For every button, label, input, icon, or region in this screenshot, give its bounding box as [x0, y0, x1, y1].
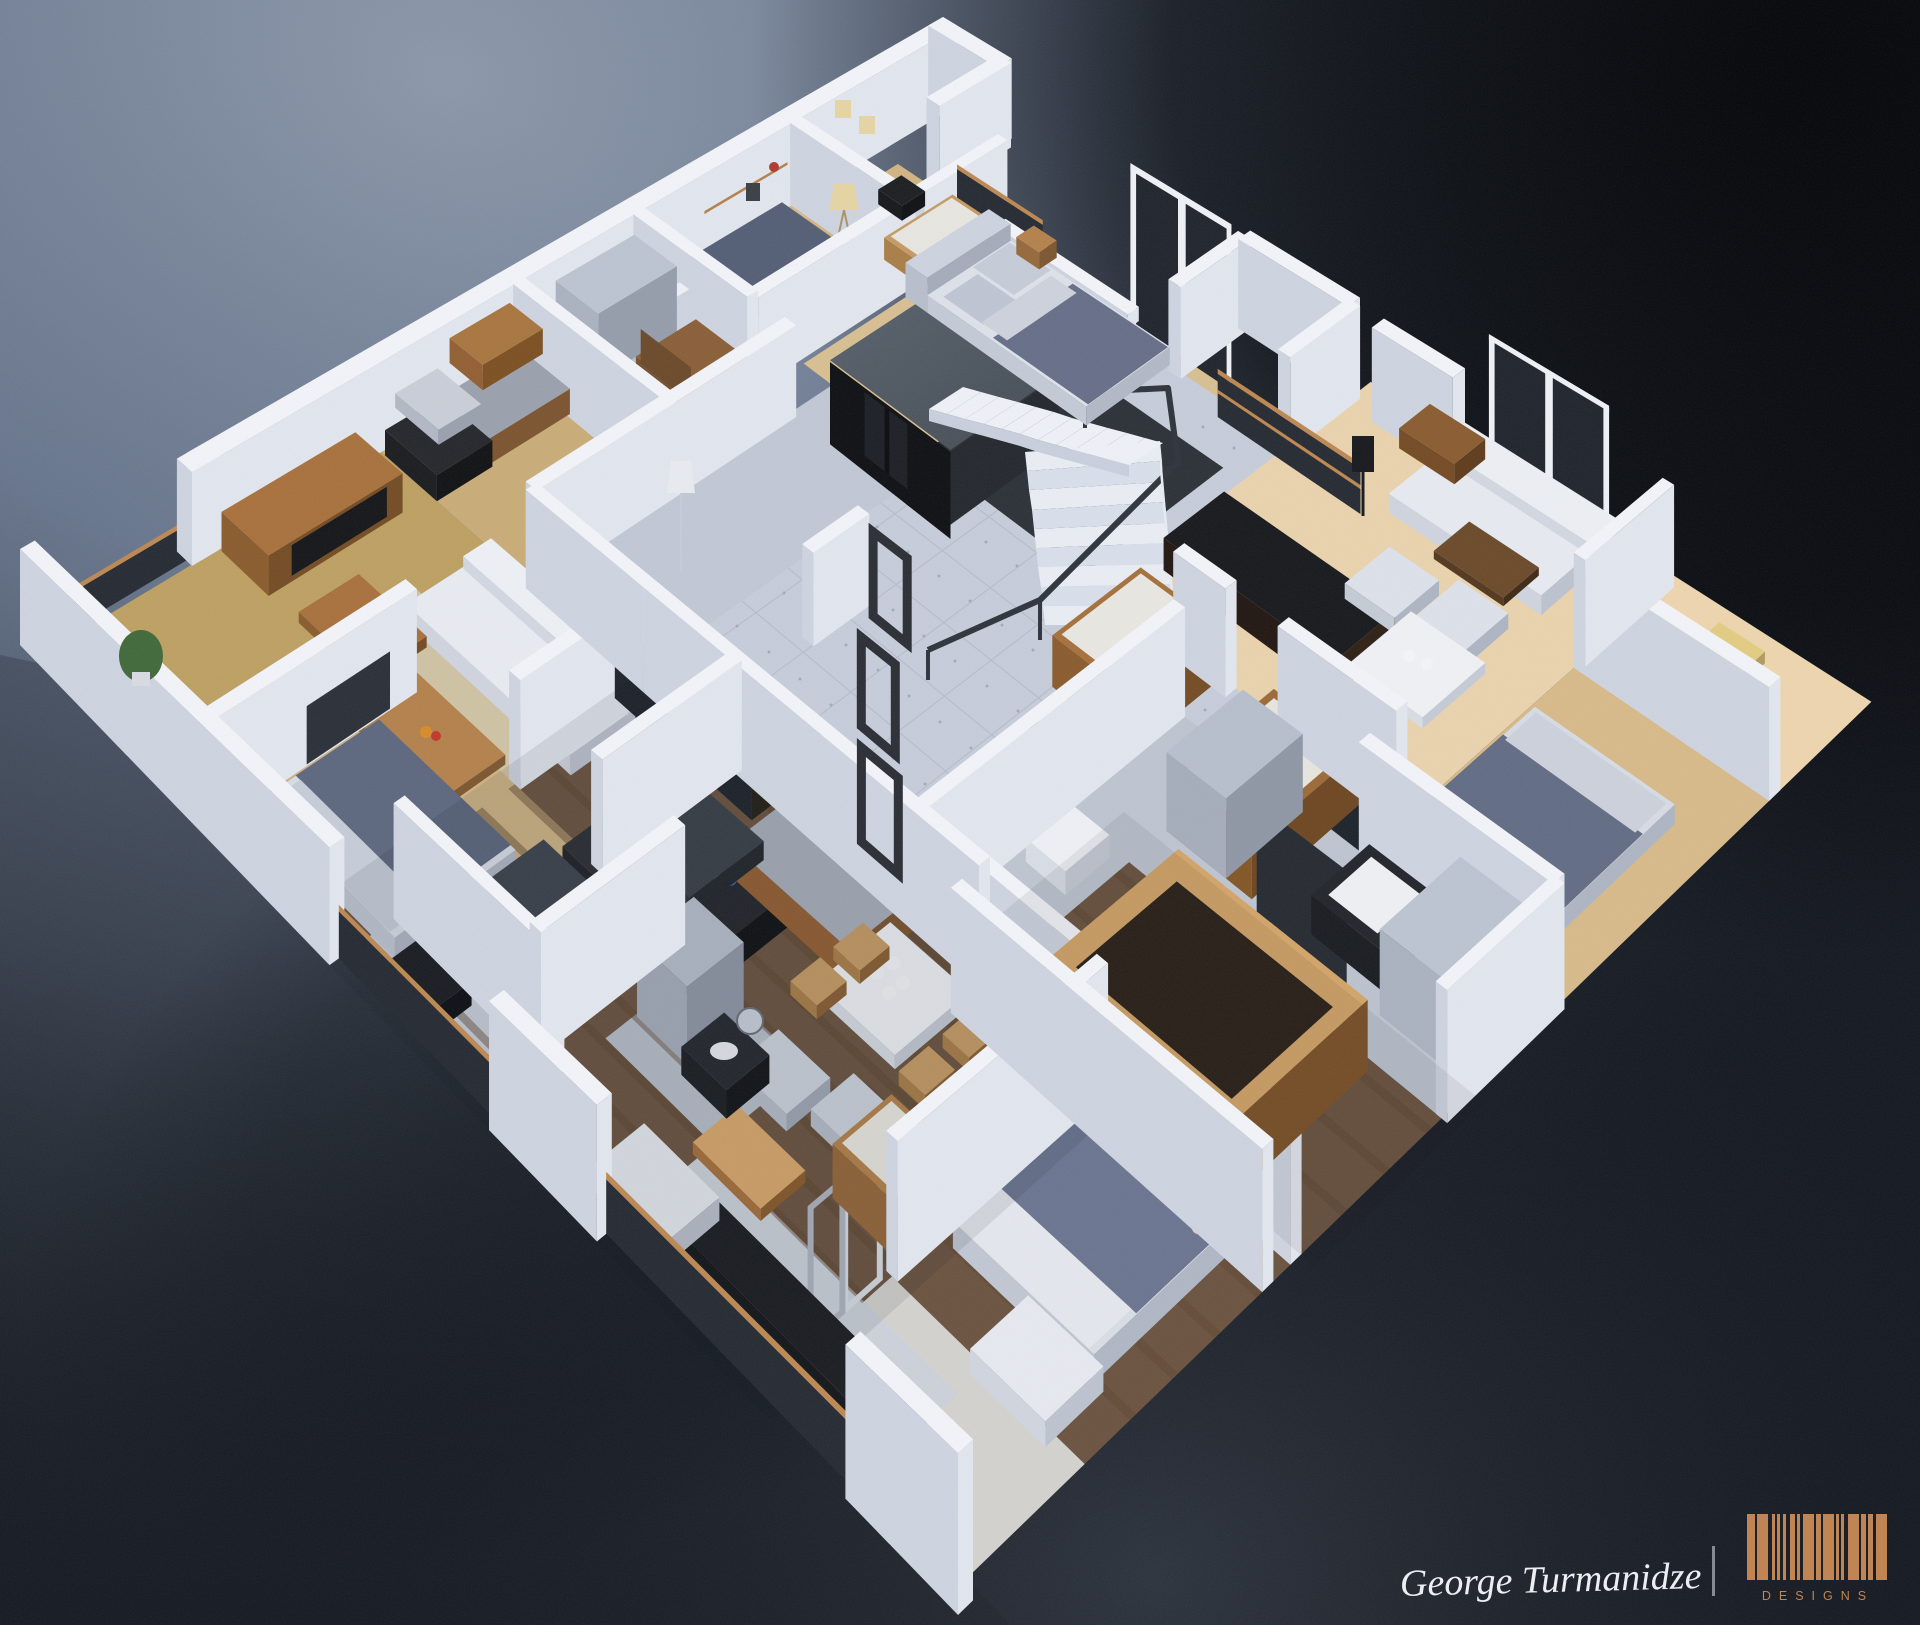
- svg-text:George Turmanidze: George Turmanidze: [1399, 1555, 1702, 1605]
- svg-text:DESIGNS: DESIGNS: [1762, 1589, 1874, 1603]
